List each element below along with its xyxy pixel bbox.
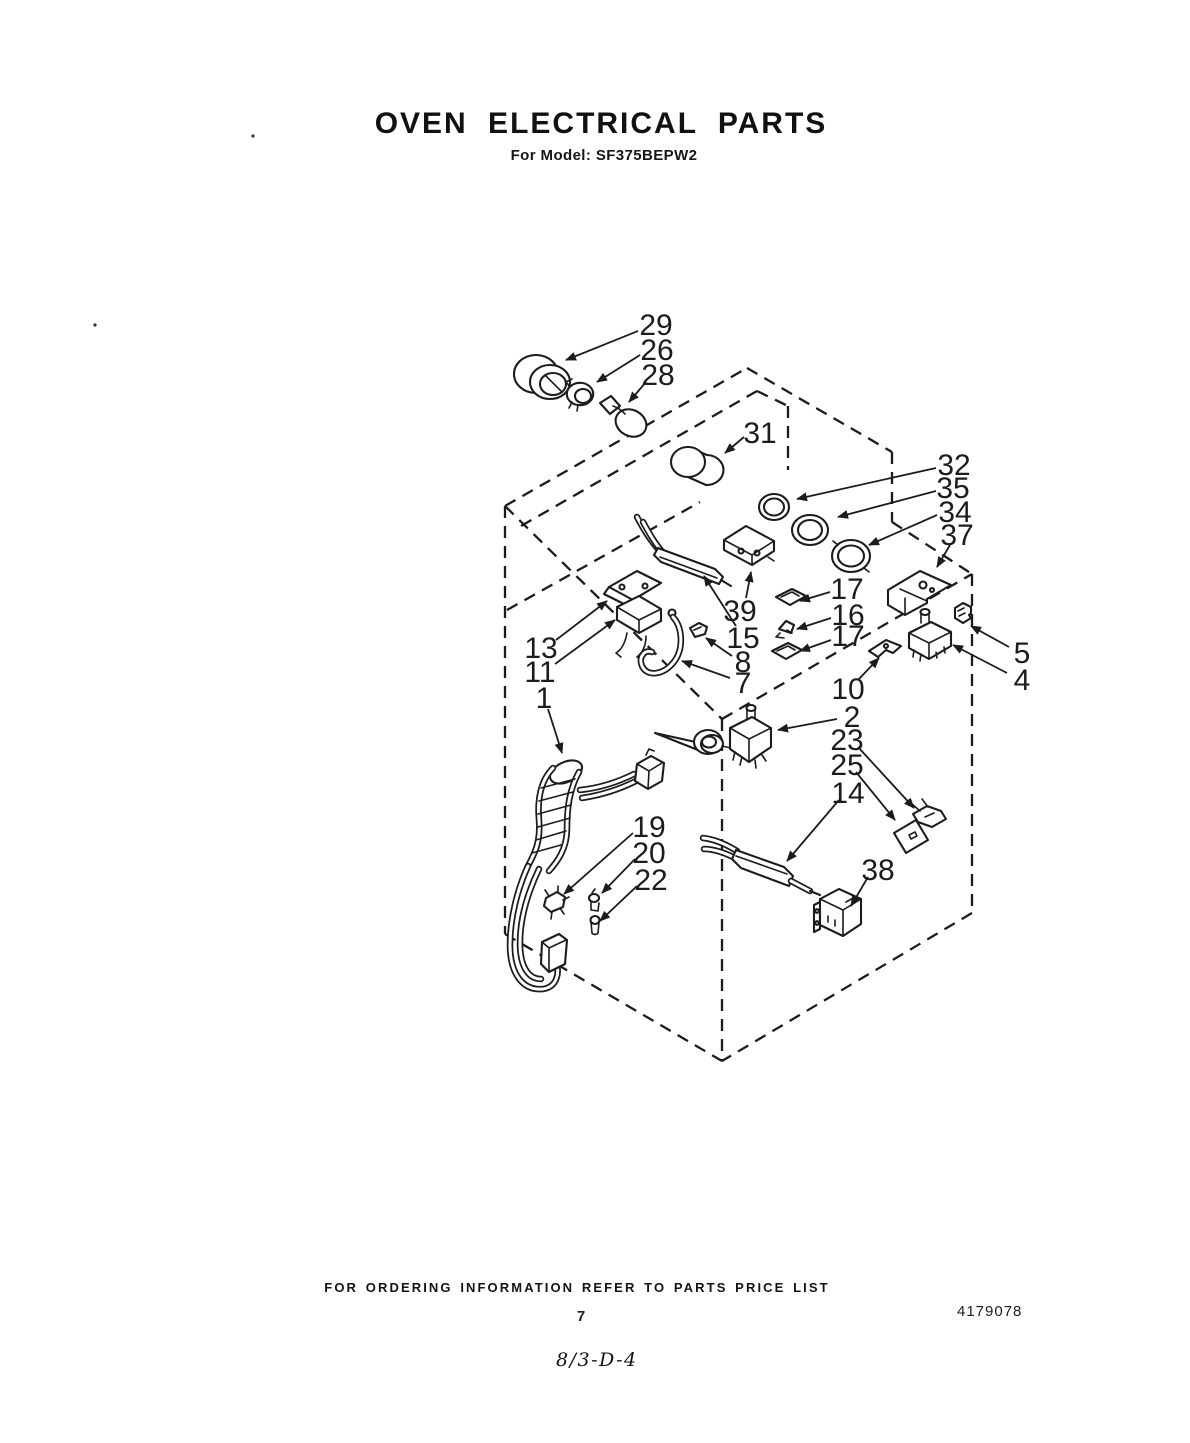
leader-line-4 (953, 645, 1007, 673)
part-number-label-28: 28 (641, 359, 674, 392)
part-number-label-7: 7 (735, 667, 752, 700)
part-29-glyph (514, 355, 570, 399)
leader-line-32 (797, 468, 936, 499)
part-number-label-37: 37 (940, 519, 973, 552)
scan-speck (93, 323, 96, 326)
part-32-ring (759, 494, 789, 520)
leader-line-2 (778, 719, 837, 730)
part-22-terminal (591, 916, 600, 934)
leader-line-26 (597, 355, 640, 382)
callout-1: 1 (536, 682, 562, 753)
leader-line-16 (797, 618, 831, 629)
part-number-label-1: 1 (536, 682, 553, 715)
callout-31: 31 (725, 417, 777, 453)
leader-line-23 (858, 747, 914, 808)
part-34-ring (832, 540, 870, 572)
part-25-plate (894, 820, 928, 853)
part-31-glyph (671, 447, 724, 485)
part-20-terminal (589, 889, 599, 911)
callout-14: 14 (787, 777, 865, 861)
part-2-thermostat (655, 705, 771, 768)
part-35-ring (792, 515, 828, 545)
cabinet-outline (505, 368, 972, 1061)
leader-line-5 (971, 626, 1009, 647)
part-17-plate-upper (776, 589, 806, 605)
part-number-label-38: 38 (861, 854, 894, 887)
callout-28: 28 (629, 359, 675, 402)
exploded-parts-diagram: 2926283132353437391587131111716175410223… (0, 0, 1190, 1443)
part-number-label-14: 14 (831, 777, 864, 810)
part-number-label-22: 22 (634, 864, 667, 897)
leader-line-7 (682, 661, 730, 678)
part-15-igniter (637, 517, 731, 586)
part-16-clip (776, 621, 794, 638)
leader-line-34 (869, 515, 937, 545)
scan-speck (251, 134, 254, 137)
part-8-terminal (690, 623, 707, 637)
part-number-label-17: 17 (831, 620, 864, 653)
leader-line-31 (725, 437, 744, 453)
leader-line-17 (800, 640, 831, 651)
callout-39: 39 (723, 572, 756, 628)
part-39-switch-block (724, 526, 774, 565)
part-19-connector (544, 886, 569, 919)
part-38-relay (814, 889, 861, 936)
part-4-switch (909, 609, 951, 661)
leader-line-19 (564, 833, 633, 894)
leader-line-35 (838, 491, 936, 517)
leader-line-22 (600, 886, 637, 921)
part-5-switch (955, 603, 971, 623)
callout-37: 37 (937, 519, 974, 567)
part-number-label-31: 31 (743, 417, 776, 450)
leader-line-13 (556, 601, 607, 640)
leader-line-1 (548, 709, 562, 753)
part-10-bracket (869, 640, 901, 657)
callout-7: 7 (682, 661, 751, 700)
part-28-glyph (600, 396, 651, 442)
part-number-label-4: 4 (1014, 664, 1031, 697)
leader-line-11 (555, 620, 615, 664)
part-37-bracket (888, 571, 951, 615)
catalog-page: { "document": { "title": "OVEN ELECTRICA… (0, 0, 1190, 1443)
leader-line-29 (566, 331, 638, 360)
part-14-element (703, 838, 820, 895)
callout-10: 10 (831, 658, 879, 706)
callout-22: 22 (600, 864, 668, 921)
part-17-plate-lower (772, 643, 802, 659)
leader-line-20 (602, 859, 635, 893)
